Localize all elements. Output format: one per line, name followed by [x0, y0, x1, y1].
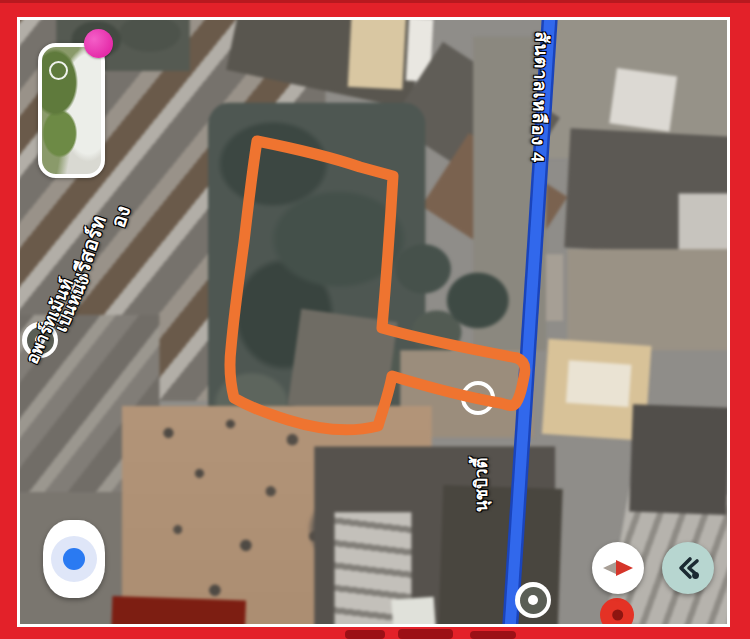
place-photo-thumbnail[interactable]: [38, 43, 105, 178]
road-and-outline-overlay: [20, 20, 727, 624]
bottom-bar-text-fragment: [398, 629, 453, 639]
red-pin-core: [609, 607, 625, 623]
compass-needle-icon: [602, 558, 634, 578]
screenshot-frame: สันตาลเหลือง 4 ลินรีสอร์ท อง เป็นหนึ่ง อ…: [0, 0, 750, 639]
bottom-bar-text-fragment: [470, 631, 516, 639]
poi-marker-disc: [520, 587, 547, 614]
camera-icon: [49, 61, 68, 80]
explore-button[interactable]: [662, 542, 714, 594]
poi-marker-road[interactable]: [515, 582, 551, 618]
poi-marker-dot: [528, 595, 538, 605]
photo-badge-pink-icon: [84, 29, 113, 58]
my-location-button[interactable]: [43, 520, 105, 598]
plot-outline: [230, 141, 525, 430]
road-name-label: สันตาลเหลือง 4: [523, 31, 557, 164]
compass-button[interactable]: [592, 542, 644, 594]
blue-dot-icon: [63, 548, 85, 570]
location-ring: [51, 536, 97, 582]
double-chevron-icon: [674, 554, 702, 582]
bottom-bar-text-fragment: [345, 630, 385, 639]
beauty-shop-label[interactable]: นุชบิวตี้: [467, 457, 494, 512]
map-viewport[interactable]: สันตาลเหลือง 4 ลินรีสอร์ท อง เป็นหนึ่ง อ…: [20, 20, 727, 624]
